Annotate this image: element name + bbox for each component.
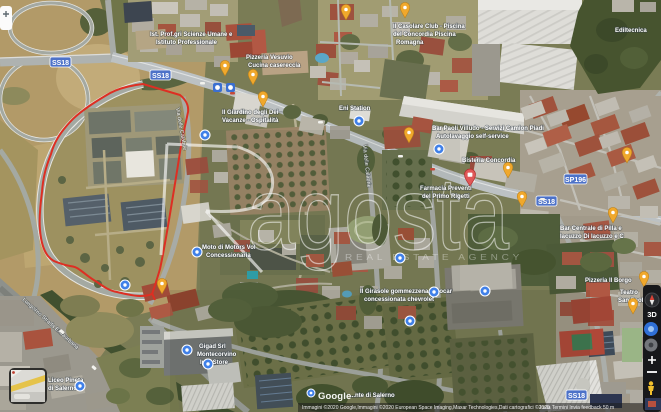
svg-text:SS18: SS18 [52, 60, 69, 67]
svg-text:Google: Google [318, 391, 351, 402]
svg-text:Il Casolare Club - Piscina: Il Casolare Club - Piscina [393, 24, 465, 30]
svg-text:SP196: SP196 [565, 177, 586, 184]
svg-text:3D: 3D [647, 310, 657, 319]
svg-text:Ediltecnica: Ediltecnica [615, 28, 647, 34]
svg-text:SS18: SS18 [152, 73, 169, 80]
svg-text:Immagini ©2020 Google,Immagini: Immagini ©2020 Google,Immagini ©2020 Eur… [302, 404, 550, 411]
svg-text:Istituto Professionale: Istituto Professionale [156, 40, 218, 46]
svg-text:Iacuzzo Di Iacuzzo e C: Iacuzzo Di Iacuzzo e C [560, 234, 624, 240]
svg-text:Eni Station: Eni Station [339, 106, 371, 112]
svg-text:Farmacia Preventi: Farmacia Preventi [420, 186, 472, 192]
svg-text:Bar Centrale di Pilla e: Bar Centrale di Pilla e [560, 226, 622, 232]
svg-text:Pizzeria Vesuvio: Pizzeria Vesuvio [246, 55, 293, 61]
svg-text:del Primo Rigetti: del Primo Rigetti [422, 194, 470, 200]
svg-text:Pizzeria Il Borgo: Pizzeria Il Borgo [585, 278, 632, 284]
svg-text:SS18: SS18 [568, 393, 585, 400]
svg-text:Moto di Motors Vol: Moto di Motors Vol [202, 245, 256, 251]
svg-text:Teatro: Teatro [620, 290, 638, 296]
svg-text:Il Giardino degli Dei -: Il Giardino degli Dei - [222, 110, 282, 116]
svg-text:Cucina casereccia: Cucina casereccia [248, 63, 301, 69]
svg-text:del Concordia Piscina: del Concordia Piscina [393, 32, 456, 38]
svg-text:concessionata chevrolet: concessionata chevrolet [364, 297, 434, 303]
svg-text:Gigad Srl: Gigad Srl [199, 344, 226, 350]
svg-text:REAL ESTATE AGENCY: REAL ESTATE AGENCY [345, 253, 523, 262]
svg-text:Vacanze - Ospitalità: Vacanze - Ospitalità [222, 118, 279, 124]
svg-text:Concessionaria: Concessionaria [206, 253, 251, 259]
svg-text:Autolavaggio self-service: Autolavaggio self-service [436, 134, 509, 140]
svg-text:Montecorvino: Montecorvino [197, 352, 237, 358]
svg-text:...nte di Salerno: ...nte di Salerno [350, 393, 395, 399]
svg-text:Romagna: Romagna [396, 40, 424, 46]
svg-text:Bar Paoli Villudo - Servizi Ca: Bar Paoli Villudo - Servizi Camion Piadi [432, 126, 544, 132]
svg-text:Ist. Prof.gri Scienze Umane e: Ist. Prof.gri Scienze Umane e [150, 32, 233, 38]
svg-text:di Salerno: di Salerno [48, 386, 77, 392]
svg-text:Italia Termini Invia f: Italia Termini Invia feedback 50 m [540, 405, 614, 411]
